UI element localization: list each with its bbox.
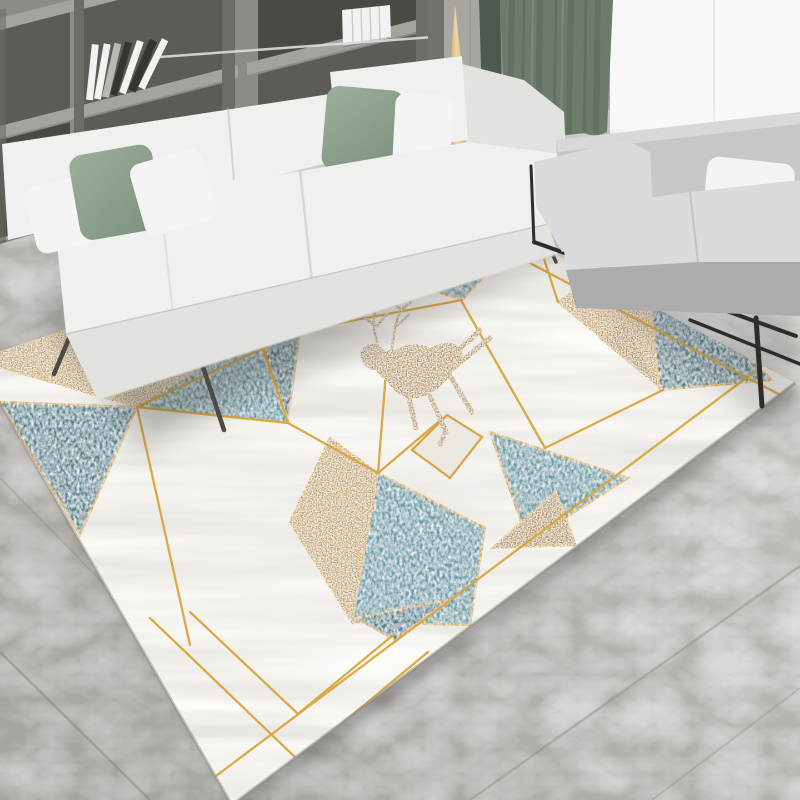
living-room-photo <box>0 0 800 800</box>
shelf-cavity <box>0 12 70 126</box>
loveseat-seat-cushion <box>690 180 800 262</box>
shelf-edge <box>0 8 6 262</box>
scene-canvas <box>0 0 800 800</box>
loveseat-front-panel <box>566 262 800 316</box>
